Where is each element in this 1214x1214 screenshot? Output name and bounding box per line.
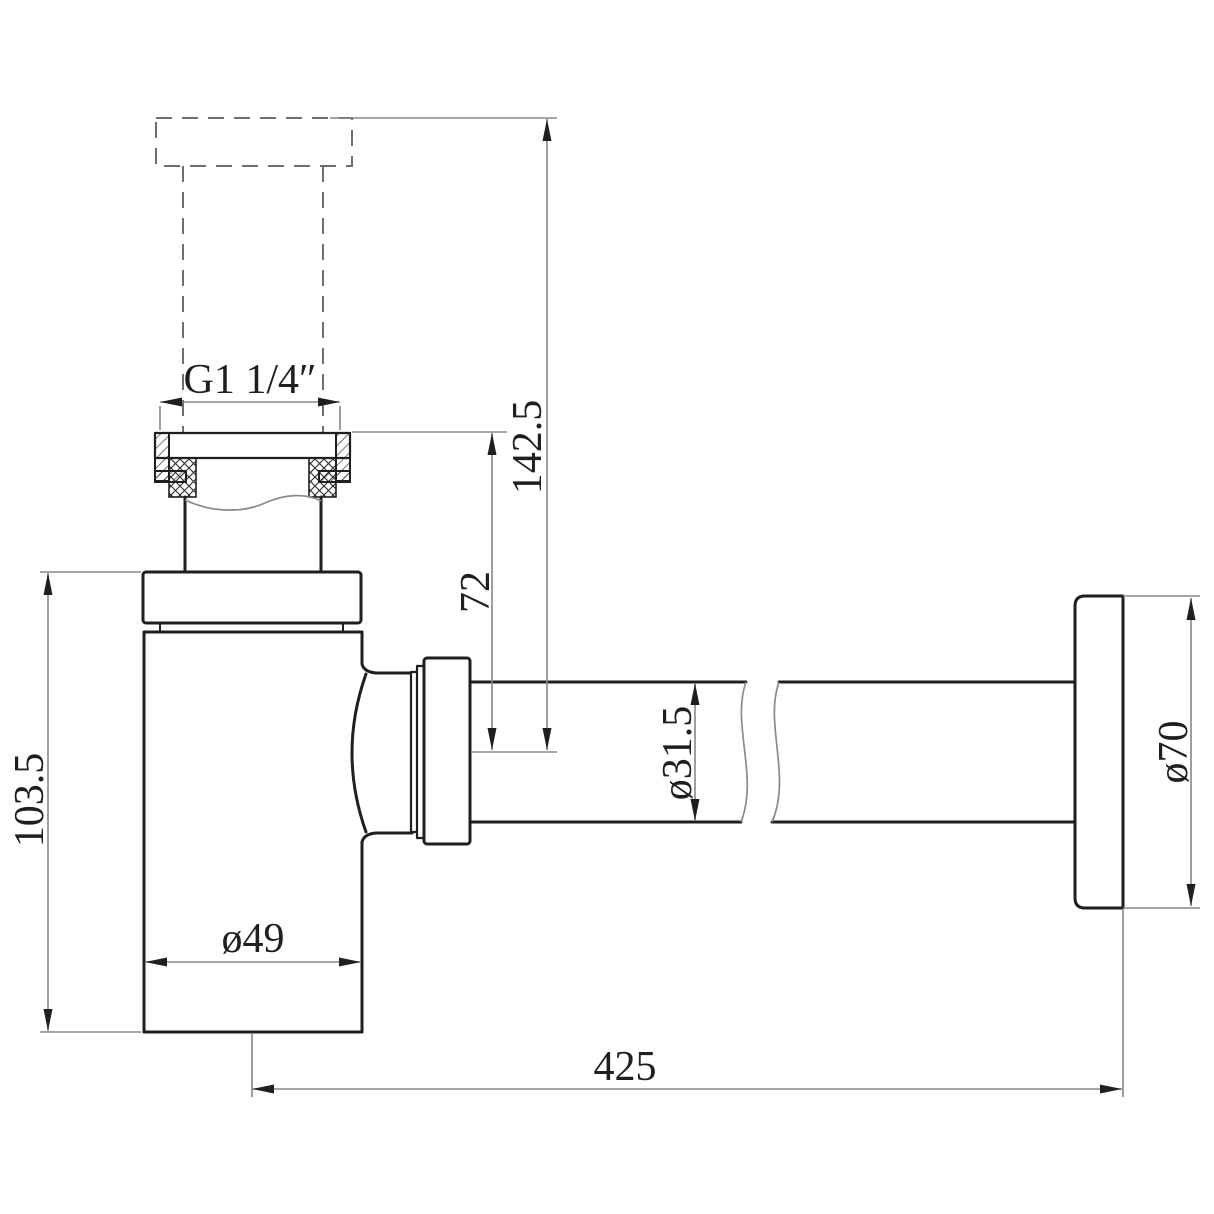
arrowhead-down bbox=[488, 728, 497, 750]
dim-horizontal-reach-label: 425 bbox=[594, 1044, 657, 1090]
phantom-waste-body bbox=[156, 118, 352, 166]
dim-body-height-label: 103.5 bbox=[7, 753, 53, 848]
arrowhead-up bbox=[543, 119, 552, 141]
flange-rim bbox=[155, 433, 350, 458]
arrowhead-right bbox=[318, 398, 340, 407]
outlet-pipe bbox=[470, 682, 1078, 822]
tailpipe-break-line bbox=[185, 496, 321, 511]
drawing-canvas: G1 1/4″ 142.5 72 103.5 ø49 ø31.5 bbox=[0, 0, 1214, 1214]
dim-outlet-height-label: 72 bbox=[453, 571, 499, 613]
pipe-break-line-left bbox=[741, 682, 747, 822]
top-nut-outline bbox=[143, 572, 361, 623]
dim-pipe-diameter-label: ø31.5 bbox=[655, 706, 701, 801]
arrowhead-down bbox=[1187, 884, 1196, 906]
arrowhead-up bbox=[1187, 598, 1196, 620]
arrowhead-up bbox=[44, 573, 53, 595]
trap-top-nut bbox=[143, 572, 361, 632]
dim-pipe-diameter: ø31.5 bbox=[655, 683, 701, 821]
arrowhead-up bbox=[691, 683, 700, 705]
dim-horizontal-reach: 425 bbox=[252, 910, 1123, 1097]
arrowhead-down bbox=[691, 799, 700, 821]
dim-body-diameter-label: ø49 bbox=[222, 916, 285, 962]
dim-thread-size-label: G1 1/4″ bbox=[184, 357, 317, 403]
body-outline bbox=[144, 632, 412, 1032]
arrowhead-down bbox=[543, 728, 552, 750]
dim-total-height-label: 142.5 bbox=[505, 400, 551, 495]
flange-lip-right bbox=[319, 471, 350, 482]
dim-escutcheon-diameter-label: ø70 bbox=[1151, 721, 1197, 784]
extension-lines bbox=[40, 572, 141, 1032]
dim-escutcheon-diameter: ø70 bbox=[1123, 596, 1200, 908]
wall-escutcheon bbox=[1075, 596, 1123, 908]
arrowhead-left bbox=[160, 398, 182, 407]
arrowhead-down bbox=[44, 1009, 53, 1031]
basin-flange-section bbox=[155, 433, 350, 497]
trap-body bbox=[144, 632, 412, 1032]
escutcheon-outline bbox=[1075, 596, 1123, 908]
arrowhead-left bbox=[252, 1085, 274, 1094]
pipe-break-line-right bbox=[772, 682, 780, 822]
dim-thread-size: G1 1/4″ bbox=[160, 357, 340, 430]
extension-lines bbox=[252, 910, 1123, 1097]
arrowhead-right bbox=[1100, 1085, 1122, 1094]
tailpipe bbox=[185, 496, 321, 573]
extension-lines bbox=[160, 406, 340, 430]
dim-body-height: 103.5 bbox=[7, 572, 141, 1032]
arrowhead-up bbox=[488, 433, 497, 455]
bottle-trap-technical-drawing: G1 1/4″ 142.5 72 103.5 ø49 ø31.5 bbox=[0, 0, 1214, 1214]
outlet-nut-assembly bbox=[411, 658, 470, 844]
outlet-nut bbox=[424, 658, 470, 844]
flange-lip-left bbox=[155, 471, 186, 482]
